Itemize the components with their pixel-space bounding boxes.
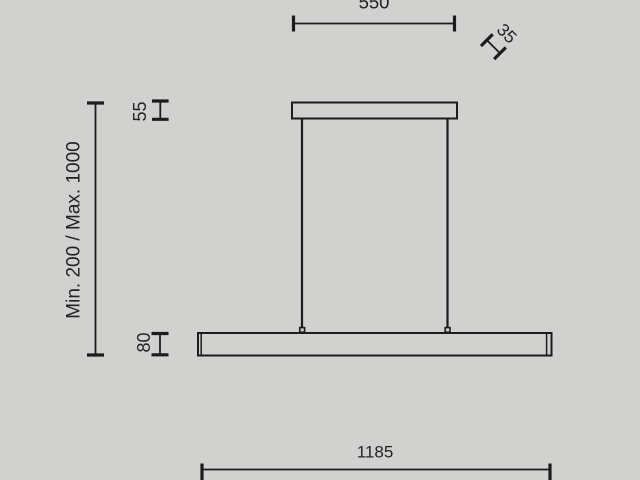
svg-text:550: 550	[359, 0, 390, 13]
svg-text:80: 80	[134, 332, 154, 352]
svg-text:1185: 1185	[357, 443, 394, 462]
svg-text:55: 55	[130, 101, 150, 121]
svg-text:Min. 200 / Max. 1000: Min. 200 / Max. 1000	[64, 141, 85, 318]
